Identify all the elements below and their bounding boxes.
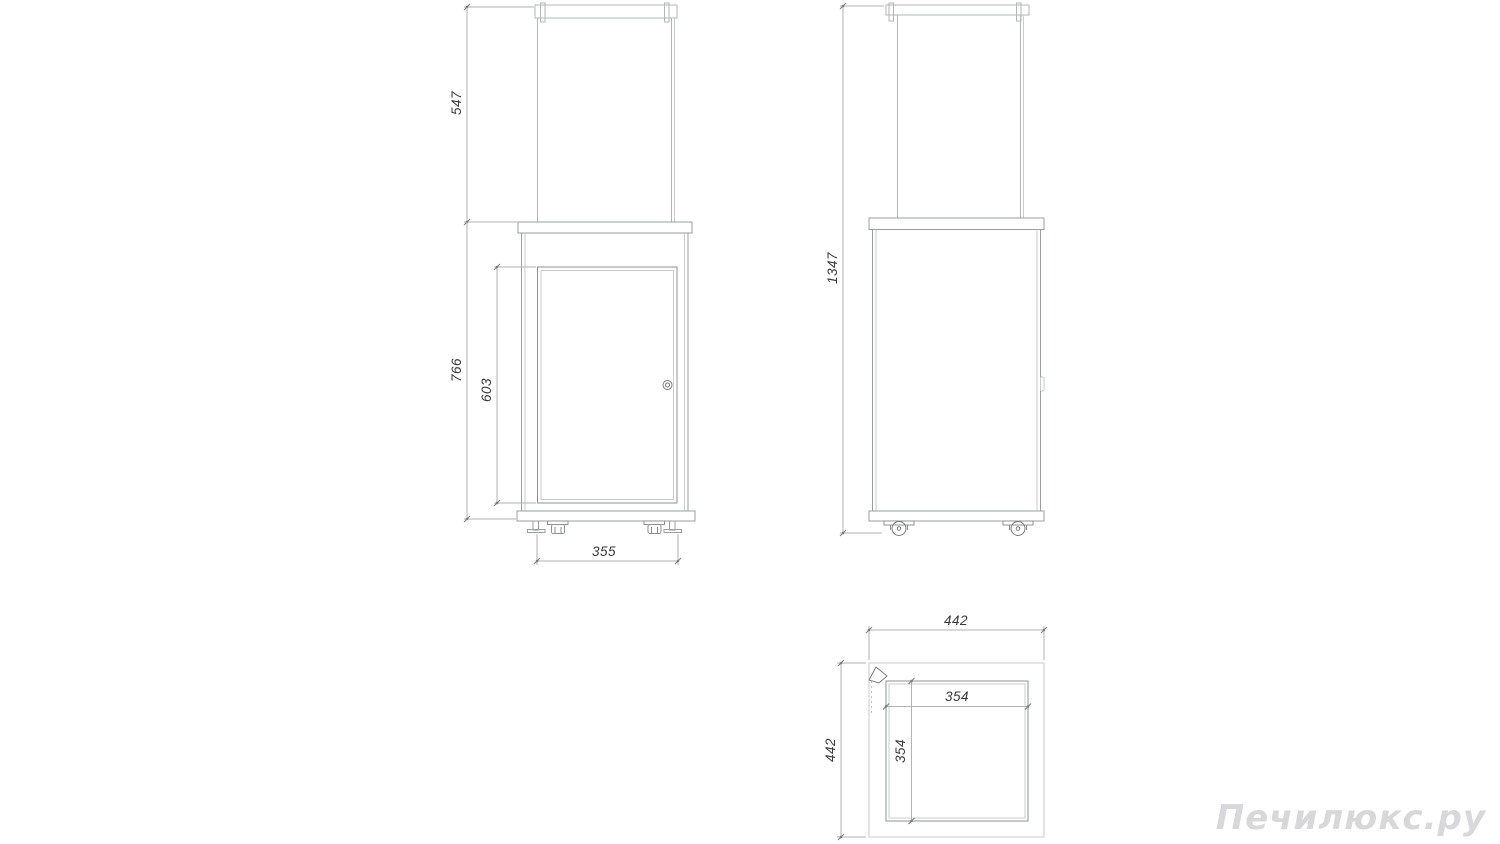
door-lock-keyhole-icon: [666, 383, 670, 387]
front-cabinet-body: [522, 233, 689, 511]
front-cap-pin-left: [541, 3, 546, 22]
front-shoulder-plate: [518, 222, 692, 233]
side-base-plate: [869, 511, 1044, 521]
technical-drawing: 547 766 603: [0, 0, 1500, 844]
side-caster-left: [884, 521, 914, 536]
caster-hub-icon: [897, 527, 901, 531]
dim-top-inner-depth: 354: [893, 678, 915, 824]
front-top-cap: [535, 5, 677, 18]
front-caster-left: [548, 521, 569, 534]
site-watermark: Печилюкс.ру: [1216, 798, 1486, 838]
front-door: [538, 267, 678, 503]
dim-label-547: 547: [449, 91, 464, 115]
caster-wheel-icon: [1011, 522, 1025, 536]
front-foot-right-leg: [670, 521, 676, 530]
side-top-cap: [886, 5, 1029, 15]
dim-label-354-horizontal: 354: [945, 689, 969, 704]
caster-hub-icon: [1016, 527, 1020, 531]
front-cap-pin-right: [665, 3, 670, 22]
drawing-canvas: 547 766 603: [0, 0, 1500, 844]
dim-label-442-left: 442: [823, 738, 838, 762]
side-door-hinge: [1041, 377, 1045, 391]
top-inner-second-outline: [889, 684, 1025, 818]
front-foot-left-base: [528, 530, 546, 533]
dim-front-door-height: 603: [479, 264, 536, 506]
dim-top-outer-depth: 442: [823, 660, 866, 840]
dim-label-442-top: 442: [944, 613, 968, 628]
caster-bracket: [548, 521, 569, 525]
top-hinge-detail: [869, 667, 887, 713]
front-caster-right: [644, 521, 665, 534]
dim-side-total-height: 1347: [825, 3, 884, 536]
front-foot-left-leg: [533, 521, 539, 530]
caster-bracket: [644, 521, 665, 525]
front-door-inner-frame: [541, 271, 674, 500]
top-view: 442 442 354: [823, 613, 1047, 840]
side-view: 1347: [825, 3, 1044, 536]
front-foot-right-base: [664, 530, 682, 533]
side-cabinet-body: [873, 230, 1041, 512]
front-base-plate: [517, 511, 695, 521]
caster-body: [648, 525, 661, 534]
door-lock-icon: [663, 381, 672, 390]
caster-body: [552, 525, 565, 534]
dim-top-outer-width: 442: [866, 613, 1047, 660]
front-view: 547 766 603: [449, 3, 695, 565]
dim-label-766: 766: [449, 358, 464, 382]
caster-wheel-icon: [892, 522, 906, 536]
side-caster-right: [1003, 521, 1033, 536]
dim-top-inner-width: 354: [883, 689, 1031, 710]
dim-label-354-vertical: 354: [893, 739, 908, 763]
side-shoulder-plate: [869, 218, 1044, 230]
hinge-flag: [869, 667, 887, 683]
side-cap-pin-left: [889, 3, 894, 21]
dim-label-603: 603: [479, 378, 494, 402]
dim-front-base-width: 355: [534, 534, 681, 565]
dim-label-1347: 1347: [825, 252, 840, 284]
dim-label-355: 355: [592, 544, 616, 559]
dim-front-glass-height: 547: [449, 4, 534, 225]
